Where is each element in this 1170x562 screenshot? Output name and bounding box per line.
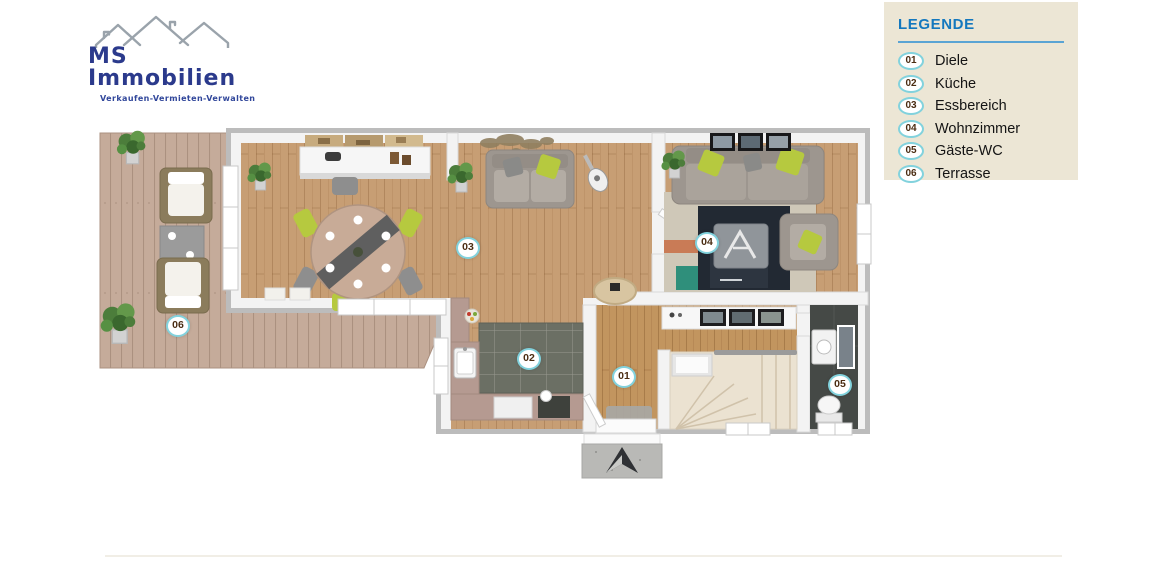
wall-wc-left-top (797, 305, 810, 313)
legend-item-label: Wohnzimmer (935, 121, 1020, 137)
legend-item-number: 06 (898, 165, 924, 183)
kitchen-sink (454, 347, 476, 378)
legend-item: 03Essbereich (898, 97, 1064, 115)
armchair-livingroom (780, 214, 838, 270)
wall-03-04-lower (652, 254, 665, 298)
legend-divider (898, 41, 1064, 43)
legend-item-label: Gäste-WC (935, 143, 1003, 159)
window-dining-bottom (338, 299, 446, 315)
legend-items: 01Diele02Küche03Essbereich04Wohnzimmer05… (898, 52, 1064, 183)
entrance-porch (582, 434, 662, 478)
window-stairs-bottom (726, 423, 770, 435)
legend-item: 02Küche (898, 75, 1064, 93)
dishwasher (494, 397, 532, 418)
guest-wc (810, 305, 858, 435)
fruit-bowl (465, 309, 479, 323)
legend-item-label: Küche (935, 76, 976, 92)
bottom-divider (105, 555, 1062, 557)
coffee-table (714, 224, 768, 268)
wall-wc-left (797, 336, 810, 432)
wc-vanity (812, 330, 836, 364)
wall-03-04-upper (652, 133, 665, 212)
window-kitchen-left (434, 338, 448, 394)
legend-item-label: Diele (935, 53, 968, 69)
sofa-dining-area (486, 150, 574, 208)
stair-handrail (714, 350, 797, 355)
legend-item: 05Gäste-WC (898, 142, 1064, 160)
legend-item-number: 05 (898, 142, 924, 160)
legend-item-label: Terrasse (935, 166, 991, 182)
sideboard-dining (300, 147, 430, 179)
wc-toilet (816, 396, 842, 422)
picture-frames-livingroom (710, 133, 791, 151)
legend-item-number: 01 (898, 52, 924, 70)
gray-pillow (743, 152, 763, 172)
legend-item-number: 03 (898, 97, 924, 115)
page: MS Immobilien Verkaufen-Vermieten-Verwal… (0, 0, 1170, 562)
terrace-armchair-1 (160, 168, 212, 223)
pet-bed (594, 278, 636, 304)
sofa-livingroom (672, 146, 824, 204)
staircase (670, 350, 797, 435)
floor-cushion (265, 288, 285, 300)
wall-hall-north (608, 292, 868, 305)
legend-item: 01Diele (898, 52, 1064, 70)
legend-title: LEGENDE (898, 16, 1064, 33)
wall-stairs-left (658, 350, 670, 429)
kitchen-tile-floor (479, 323, 583, 393)
legend-item: 06Terrasse (898, 165, 1064, 183)
window-wc-bottom (818, 423, 852, 435)
legend-item-number: 02 (898, 75, 924, 93)
legend-item-label: Essbereich (935, 98, 1007, 114)
terrace-armchair-2 (157, 258, 209, 313)
legend-item-number: 04 (898, 120, 924, 138)
floor-cushion (290, 288, 310, 300)
hall-sideboard (662, 307, 796, 329)
terrace-cup (168, 232, 176, 240)
wc-mirror (838, 326, 854, 368)
legend-item: 04Wohnzimmer (898, 120, 1064, 138)
legend-panel: LEGENDE 01Diele02Küche03Essbereich04Wohn… (884, 2, 1078, 180)
terrace-sliding-door (223, 166, 238, 290)
dining-chair (332, 177, 358, 195)
window-livingroom-right (857, 204, 871, 264)
